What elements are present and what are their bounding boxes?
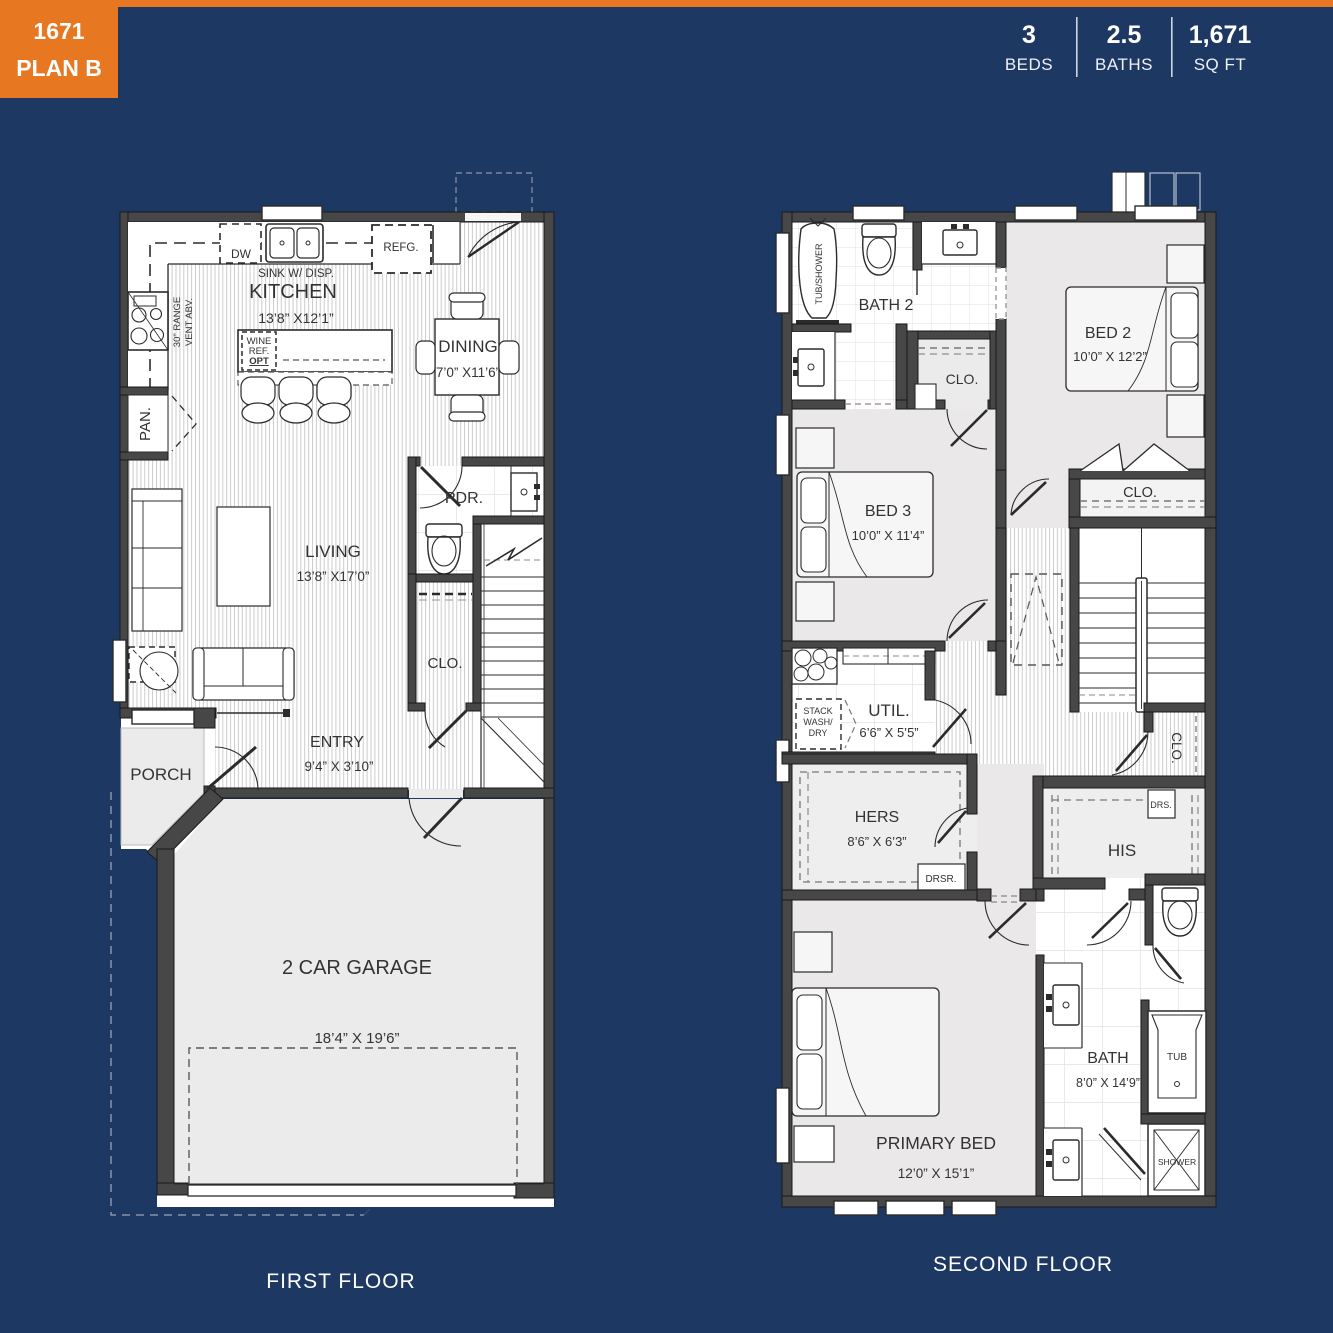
svg-text:HIS: HIS bbox=[1108, 841, 1136, 860]
svg-text:DINING: DINING bbox=[438, 337, 498, 356]
svg-text:REFG.: REFG. bbox=[383, 242, 418, 254]
svg-text:3: 3 bbox=[1022, 21, 1036, 49]
svg-text:VENT ABV.: VENT ABV. bbox=[184, 298, 195, 346]
svg-text:2 CAR GARAGE: 2 CAR GARAGE bbox=[282, 957, 432, 979]
svg-text:PAN.: PAN. bbox=[137, 407, 154, 441]
svg-text:BED 3: BED 3 bbox=[865, 503, 911, 520]
svg-text:BATHS: BATHS bbox=[1095, 55, 1153, 74]
svg-text:BEDS: BEDS bbox=[1005, 55, 1053, 74]
svg-text:SINK W/ DISP.: SINK W/ DISP. bbox=[258, 268, 334, 280]
svg-text:1,671: 1,671 bbox=[1189, 21, 1252, 49]
svg-text:ENTRY: ENTRY bbox=[310, 734, 364, 751]
svg-text:10’0” X 11’4”: 10’0” X 11’4” bbox=[852, 528, 925, 543]
svg-text:BATH: BATH bbox=[1087, 1050, 1128, 1067]
svg-text:SHOWER: SHOWER bbox=[1158, 1157, 1196, 1167]
svg-text:FIRST FLOOR: FIRST FLOOR bbox=[266, 1270, 415, 1293]
svg-text:HERS: HERS bbox=[855, 809, 899, 826]
svg-text:PORCH: PORCH bbox=[130, 765, 191, 784]
svg-text:12’0” X 15’1”: 12’0” X 15’1” bbox=[898, 1166, 975, 1181]
svg-text:CLO.: CLO. bbox=[1123, 485, 1157, 501]
svg-text:18’4” X 19’6”: 18’4” X 19’6” bbox=[314, 1030, 399, 1047]
svg-text:CLO.: CLO. bbox=[1169, 732, 1184, 764]
svg-text:KITCHEN: KITCHEN bbox=[249, 281, 337, 303]
svg-text:PRIMARY BED: PRIMARY BED bbox=[876, 1133, 996, 1153]
svg-text:WASH/: WASH/ bbox=[803, 717, 833, 727]
svg-text:2.5: 2.5 bbox=[1107, 21, 1142, 49]
svg-text:PDR.: PDR. bbox=[445, 490, 483, 507]
svg-text:DRSR.: DRSR. bbox=[925, 874, 956, 885]
svg-text:CLO.: CLO. bbox=[946, 371, 979, 387]
svg-text:UTIL.: UTIL. bbox=[868, 701, 910, 720]
svg-text:CLO.: CLO. bbox=[427, 655, 462, 672]
svg-text:DRY: DRY bbox=[809, 728, 828, 738]
svg-text:13’8” X12’1”: 13’8” X12’1” bbox=[258, 310, 334, 326]
svg-text:BED 2: BED 2 bbox=[1085, 325, 1131, 342]
svg-text:10’0” X 12’2”: 10’0” X 12’2” bbox=[1073, 349, 1147, 364]
svg-text:30" RANGE: 30" RANGE bbox=[172, 297, 183, 347]
svg-text:TUB/SHOWER: TUB/SHOWER bbox=[814, 243, 824, 305]
svg-text:6’6” X 5’5”: 6’6” X 5’5” bbox=[859, 725, 918, 740]
svg-text:STACK: STACK bbox=[803, 706, 832, 716]
svg-text:9’4” X 3’10”: 9’4” X 3’10” bbox=[304, 759, 373, 774]
svg-text:DW: DW bbox=[231, 247, 252, 261]
svg-text:SQ FT: SQ FT bbox=[1194, 55, 1247, 74]
svg-text:TUB: TUB bbox=[1167, 1052, 1187, 1063]
svg-text:DRS.: DRS. bbox=[1150, 800, 1172, 810]
svg-text:8’6” X 6’3”: 8’6” X 6’3” bbox=[847, 834, 906, 849]
svg-text:SECOND FLOOR: SECOND FLOOR bbox=[933, 1253, 1113, 1276]
svg-text:13’8” X17’0”: 13’8” X17’0” bbox=[297, 569, 370, 584]
svg-text:PLAN B: PLAN B bbox=[16, 55, 102, 81]
svg-text:OPT: OPT bbox=[249, 356, 269, 367]
svg-text:LIVING: LIVING bbox=[305, 542, 361, 561]
svg-text:7’0” X11’6”: 7’0” X11’6” bbox=[436, 365, 500, 380]
svg-text:BATH 2: BATH 2 bbox=[859, 297, 914, 314]
svg-text:8’0” X 14’9”: 8’0” X 14’9” bbox=[1076, 1076, 1140, 1090]
svg-text:1671: 1671 bbox=[33, 18, 84, 44]
